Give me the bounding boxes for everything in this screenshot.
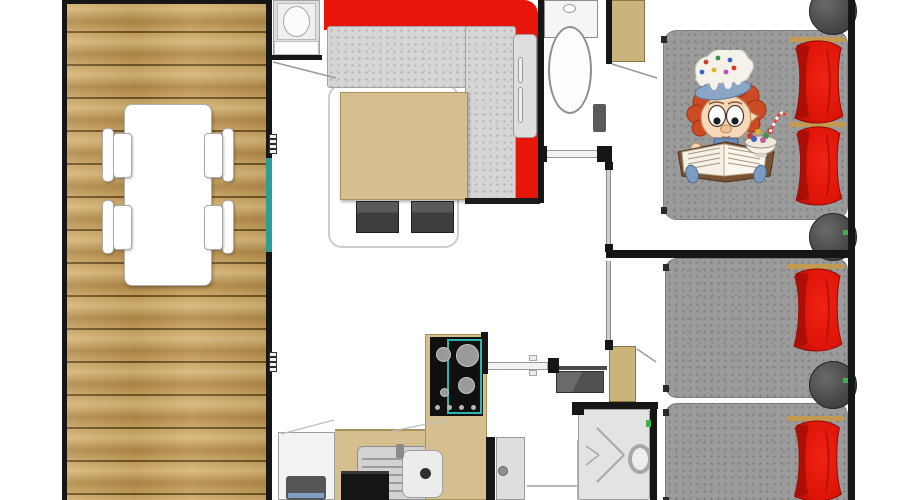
toilet-bowl	[548, 26, 592, 114]
sink-drain	[420, 468, 431, 479]
door-handle-tab	[529, 355, 537, 361]
burner-large	[456, 344, 479, 367]
wardrobe	[611, 0, 645, 62]
sofa-cushions-horizontal	[327, 26, 468, 88]
coffee-table	[340, 92, 468, 200]
burner-small	[436, 347, 451, 362]
entrance-door-knob	[498, 466, 508, 476]
hob-knob	[459, 405, 464, 410]
sink-faucet	[396, 444, 404, 458]
red-pillow	[786, 420, 846, 500]
marker-dot	[843, 230, 848, 235]
hallway-door	[487, 362, 548, 370]
wall-wc-right	[606, 0, 612, 64]
wall-terrace-top	[62, 0, 270, 4]
toilet-paper-holder	[593, 104, 606, 132]
oven	[341, 471, 389, 500]
toilet-flush-button	[563, 4, 576, 13]
kitchen-top-counter	[274, 41, 319, 55]
door-swing-line	[527, 485, 579, 487]
stool	[356, 201, 399, 233]
door-hinge	[548, 358, 559, 373]
mascot-child-reading-illustration	[666, 50, 790, 186]
chair-seat	[204, 133, 223, 178]
door-handle	[269, 134, 277, 154]
chair-seat	[113, 205, 132, 250]
wc-door	[545, 150, 600, 158]
sofa-cushions-vertical	[465, 26, 516, 200]
floor-plan	[0, 0, 900, 500]
chair-back	[222, 200, 234, 254]
wall-cap	[605, 244, 613, 252]
wall-shower-right	[650, 402, 657, 500]
wall-kitchen-stub	[481, 332, 488, 374]
wall-cap	[605, 340, 613, 350]
wall-wc-left	[538, 0, 544, 203]
wall-shower-top	[572, 402, 658, 409]
burner-tiny	[440, 388, 449, 397]
door-hinge	[597, 146, 609, 162]
chair-seat	[204, 205, 223, 250]
wall-heater	[556, 371, 604, 393]
wall-right-exterior	[848, 0, 855, 500]
shower-drain	[628, 444, 652, 474]
hob-knob	[471, 405, 476, 410]
stool	[411, 201, 454, 233]
storage-cabinet	[609, 346, 636, 402]
red-pillow	[786, 268, 846, 352]
wall-bedroom-divider	[606, 250, 855, 258]
window-bay	[266, 158, 272, 252]
chair-back	[222, 128, 234, 182]
sliding-door-bedroom2	[606, 261, 611, 341]
open-door-leaf	[513, 34, 537, 138]
sofa-edge	[465, 198, 540, 204]
red-pillow	[787, 40, 847, 124]
sliding-door-bedroom1	[606, 166, 611, 248]
plumbing-marker	[646, 420, 651, 427]
wall-line	[559, 366, 607, 370]
kitchen-top-basin	[283, 6, 310, 37]
burner-medium	[458, 377, 475, 394]
door-handle	[269, 352, 277, 372]
door-leaf-handle	[518, 87, 523, 123]
hob-knob	[435, 405, 440, 410]
door-handle-tab	[529, 370, 537, 376]
door-leaf-handle	[518, 57, 523, 83]
fridge-accent	[288, 493, 324, 498]
red-pillow	[787, 126, 847, 206]
chair-seat	[113, 133, 132, 178]
marker-dot	[843, 378, 848, 383]
wall-entrance-stub	[486, 437, 495, 500]
hob-knob	[447, 405, 452, 410]
wall-cap	[605, 162, 613, 170]
door-hinge	[538, 146, 547, 162]
wall-shower-corner	[572, 402, 584, 415]
wall-kitchen-top	[270, 55, 322, 60]
wall-terrace-left	[62, 0, 67, 500]
dining-table	[124, 104, 212, 286]
